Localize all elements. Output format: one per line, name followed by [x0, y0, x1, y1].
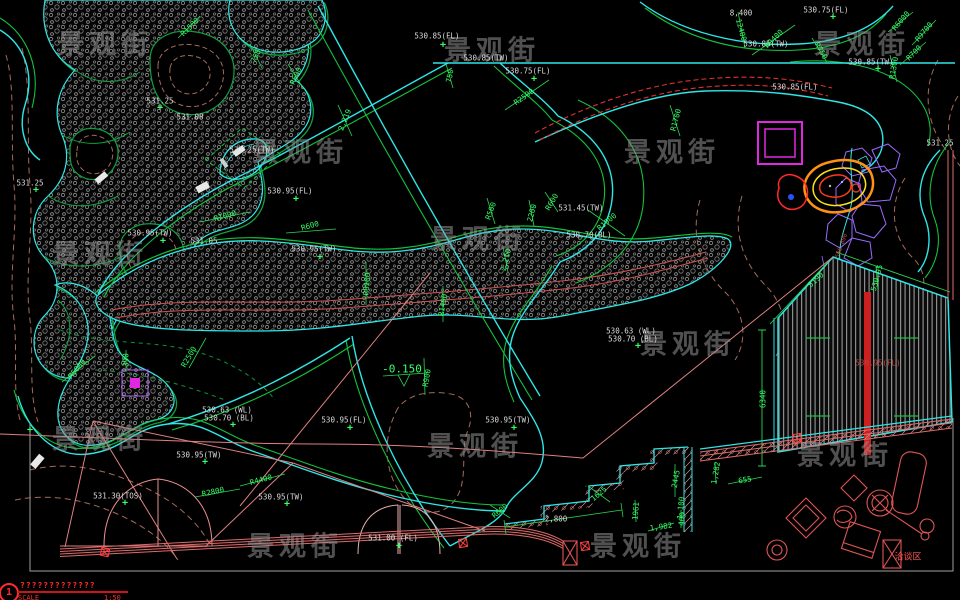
water-dot	[788, 194, 794, 200]
detail-number-bubble: 1	[0, 583, 19, 600]
umbrella-post	[563, 540, 901, 568]
table-square	[841, 475, 867, 501]
title-rule	[18, 591, 128, 593]
pebble-area-topleft	[33, 0, 328, 448]
drawing-title-text: ?????????????	[20, 581, 96, 590]
round-table	[834, 506, 856, 528]
stepped-wall	[505, 447, 692, 532]
title-block: 1 ????????????? SCALE 1:50	[0, 580, 400, 600]
cad-drawing-canvas[interactable]: 景观街景观街景观街景观街景观街景观街景观街景观街景观街景观街景观街景观街景观街5…	[0, 0, 960, 600]
red-dashed-alignment	[535, 77, 832, 140]
table-square	[786, 498, 826, 538]
bench	[30, 454, 44, 469]
planter-square-large	[758, 122, 802, 164]
scale-label: SCALE	[18, 594, 39, 600]
plan-drawing	[0, 0, 960, 600]
boulder-outline	[778, 175, 808, 210]
scale-value: 1:50	[104, 594, 121, 600]
lounge-chair	[890, 450, 928, 516]
retaining-wall-lines	[60, 527, 563, 557]
round-table	[767, 540, 787, 560]
